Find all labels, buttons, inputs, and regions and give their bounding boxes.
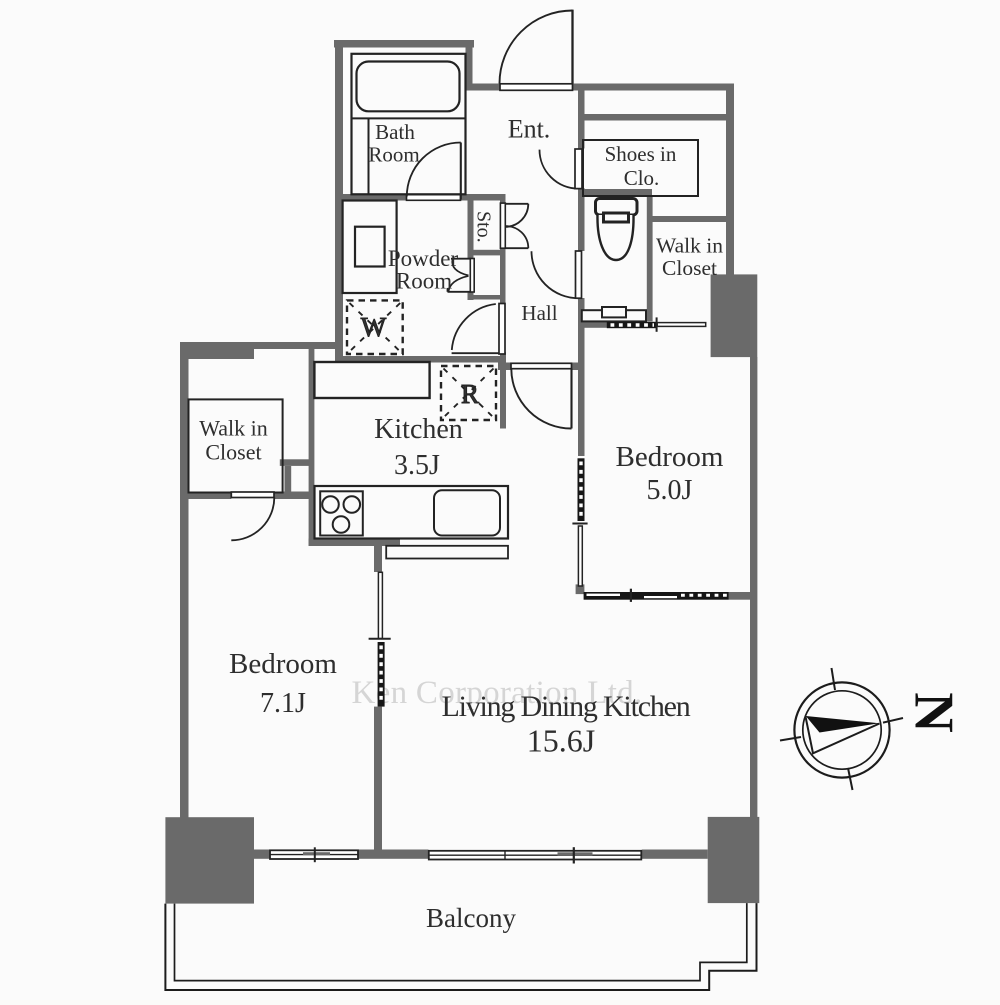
svg-text:Sto.: Sto. — [473, 211, 495, 243]
svg-text:Room: Room — [368, 143, 419, 167]
svg-text:R: R — [461, 379, 479, 409]
svg-text:Closet: Closet — [205, 440, 261, 465]
svg-text:Living Dining Kitchen: Living Dining Kitchen — [441, 690, 690, 723]
svg-text:Kitchen: Kitchen — [374, 414, 463, 445]
svg-text:Room: Room — [396, 269, 452, 294]
svg-text:Powder: Powder — [388, 246, 459, 271]
svg-text:3.5J: 3.5J — [394, 450, 440, 481]
svg-text:Shoes in: Shoes in — [605, 142, 677, 166]
svg-text:15.6J: 15.6J — [527, 723, 595, 759]
svg-text:Closet: Closet — [662, 256, 717, 280]
svg-text:Hall: Hall — [521, 301, 557, 325]
svg-text:Balcony: Balcony — [426, 903, 516, 933]
svg-text:N: N — [903, 692, 965, 732]
svg-text:5.0J: 5.0J — [647, 475, 693, 506]
svg-text:Bath: Bath — [375, 120, 415, 144]
svg-text:Clo.: Clo. — [624, 166, 660, 190]
svg-text:Ent.: Ent. — [508, 115, 551, 144]
svg-text:7.1J: 7.1J — [260, 688, 306, 719]
svg-text:W: W — [361, 312, 387, 342]
svg-text:Bedroom: Bedroom — [616, 441, 724, 473]
svg-text:Walk in: Walk in — [656, 234, 723, 258]
svg-text:Bedroom: Bedroom — [229, 648, 337, 680]
svg-text:Walk in: Walk in — [199, 416, 268, 441]
